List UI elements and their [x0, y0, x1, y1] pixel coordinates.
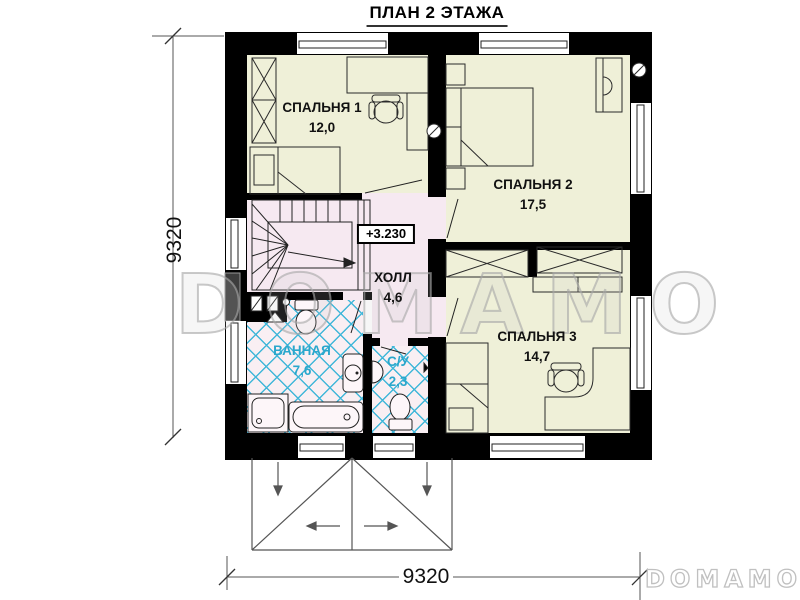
door-bedroom3	[447, 298, 458, 336]
room-label-bathroom: ВАННАЯ 7,6	[273, 341, 331, 381]
slope-arrow-right	[364, 522, 397, 530]
staircase	[252, 200, 370, 290]
window-bottom-bathroom	[298, 436, 345, 458]
wardrobe	[537, 247, 622, 273]
dresser-mirror	[596, 58, 622, 112]
shower	[248, 394, 288, 432]
toilet	[389, 394, 412, 430]
chair	[548, 363, 584, 392]
nightstand	[446, 168, 465, 189]
room-label-wc: С/У 2,3	[387, 352, 409, 392]
chair	[369, 95, 403, 123]
porch-roof	[252, 458, 452, 550]
toilet	[295, 300, 318, 334]
page-title: ПЛАН 2 ЭТАЖА	[367, 3, 508, 27]
room-label-bedroom3: СПАЛЬНЯ 3 14,7	[497, 327, 576, 367]
elevation-mark: +3.230	[357, 224, 415, 244]
window-bottom-wc	[373, 436, 415, 458]
door-bathroom	[351, 301, 361, 333]
shelf	[533, 277, 622, 292]
dimension-bottom: 9320	[403, 565, 450, 589]
cabinet	[407, 93, 428, 150]
window-bottom-bedroom3	[490, 436, 585, 458]
dimension-left: 9320	[163, 217, 187, 264]
wardrobe	[252, 58, 276, 143]
wardrobe	[446, 250, 528, 277]
bedroom2-furniture	[427, 58, 646, 189]
vent-icon	[427, 124, 441, 138]
window-left-hall	[226, 218, 246, 270]
window-top-bedroom2	[479, 33, 569, 54]
window-left-bathroom	[226, 321, 246, 384]
room-area: 4,6	[374, 288, 412, 308]
slope-arrow-left	[307, 522, 340, 530]
chimney-block	[225, 273, 240, 321]
bathtub	[289, 402, 363, 432]
sink	[343, 354, 363, 392]
sink	[372, 361, 383, 383]
desk	[347, 57, 428, 93]
room-name: СПАЛЬНЯ 1	[282, 98, 361, 118]
window-top-bedroom1	[297, 33, 388, 54]
door-bedroom2	[447, 199, 458, 238]
room-area: 2,3	[387, 372, 409, 392]
floor-plan-page: DOMAMO ПЛАН 2 ЭТАЖА СПАЛЬНЯ 1 12,0 СПАЛЬ…	[0, 0, 800, 600]
brand-logo: DOMAMO	[645, 565, 800, 593]
bed	[446, 343, 488, 433]
door-bedroom1	[365, 180, 422, 193]
room-label-bedroom2: СПАЛЬНЯ 2 17,5	[493, 175, 572, 215]
room-name: ВАННАЯ	[273, 341, 331, 361]
room-name: СПАЛЬНЯ 3	[497, 327, 576, 347]
room-area: 7,6	[273, 361, 331, 381]
bed	[250, 147, 340, 194]
room-name: ХОЛЛ	[374, 268, 412, 288]
window-right-bedroom3	[631, 296, 651, 390]
room-name: СПАЛЬНЯ 2	[493, 175, 572, 195]
nightstand	[446, 64, 465, 85]
room-label-hall: ХОЛЛ 4,6	[374, 268, 412, 308]
door-stop	[424, 363, 428, 372]
room-area: 17,5	[493, 195, 572, 215]
room-area: 14,7	[497, 347, 576, 367]
room-area: 12,0	[282, 118, 361, 138]
double-bed	[461, 88, 533, 166]
vent-icon	[632, 63, 646, 77]
room-name: С/У	[387, 352, 409, 372]
window-right-bedroom2	[631, 103, 651, 194]
room-label-bedroom1: СПАЛЬНЯ 1 12,0	[282, 98, 361, 138]
